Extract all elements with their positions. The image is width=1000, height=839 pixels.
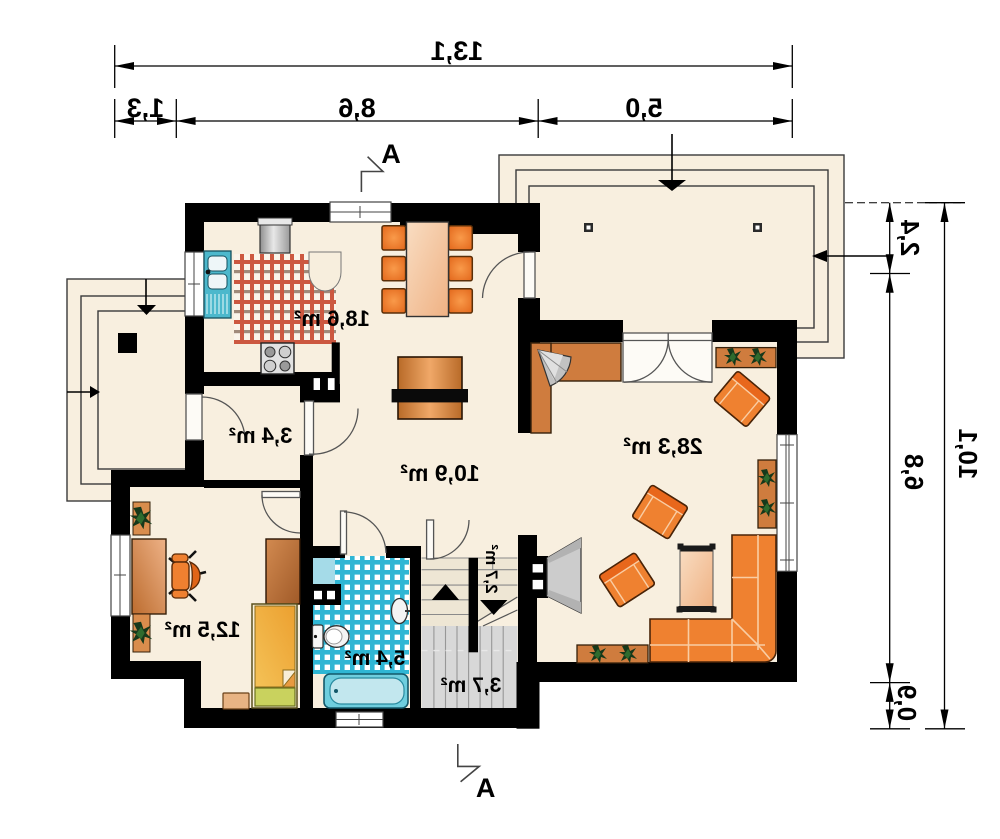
svg-text:A: A: [476, 773, 496, 803]
svg-text:8,6: 8,6: [338, 93, 376, 123]
svg-text:2,4: 2,4: [895, 219, 925, 256]
svg-text:13,1: 13,1: [431, 36, 484, 66]
svg-text:18,6 m²: 18,6 m²: [294, 306, 370, 331]
svg-text:10,9 m²: 10,9 m²: [400, 460, 480, 486]
svg-text:6,8: 6,8: [899, 454, 929, 490]
svg-text:3,7 m²: 3,7 m²: [441, 674, 502, 697]
svg-text:5,4 m²: 5,4 m²: [345, 647, 406, 670]
svg-text:3,4 m²: 3,4 m²: [229, 423, 293, 448]
svg-text:12,5 m²: 12,5 m²: [165, 617, 241, 642]
svg-text:5,0: 5,0: [625, 93, 663, 123]
svg-text:28,3 m²: 28,3 m²: [623, 433, 703, 459]
svg-text:1,3: 1,3: [127, 93, 165, 123]
svg-text:A: A: [381, 139, 401, 169]
svg-text:10,1: 10,1: [953, 429, 983, 480]
svg-text:2,7 m²: 2,7 m²: [482, 544, 501, 593]
svg-text:0,9: 0,9: [892, 685, 922, 721]
